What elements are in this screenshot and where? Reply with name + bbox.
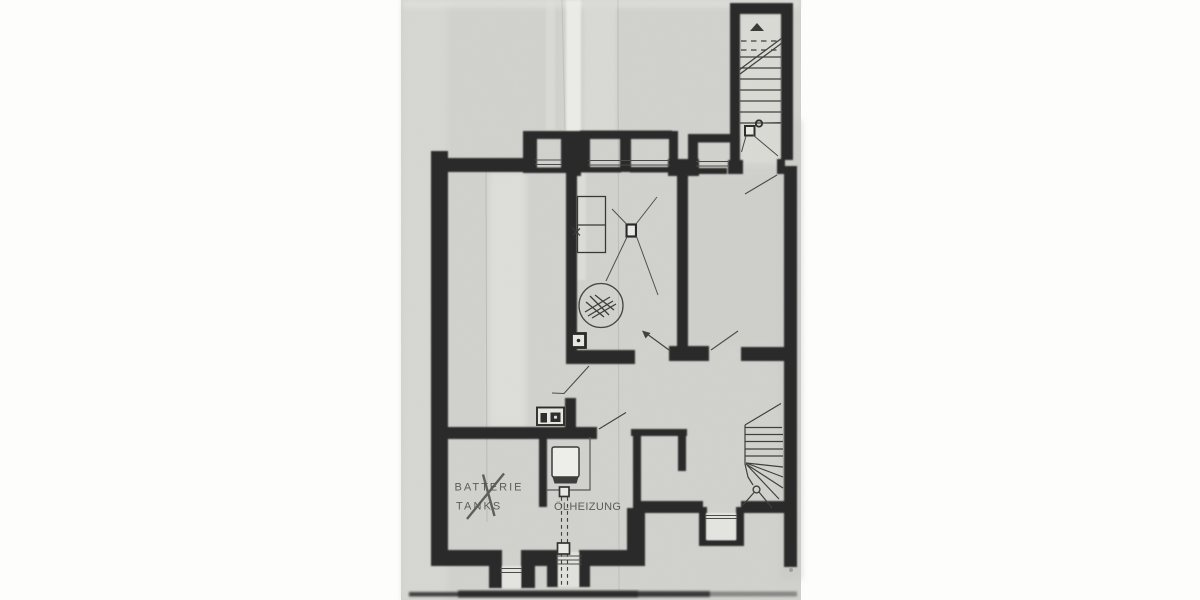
svg-text:ÖLHEIZUNG: ÖLHEIZUNG (554, 501, 621, 513)
